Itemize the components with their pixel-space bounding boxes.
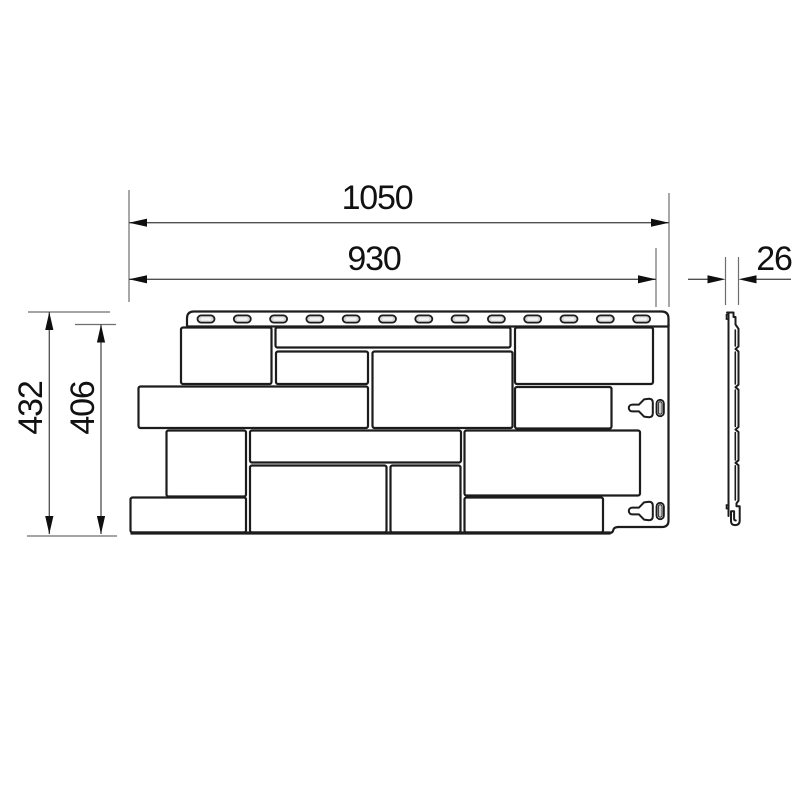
nail-slot [270, 315, 287, 322]
stone [139, 387, 369, 429]
stone [250, 431, 461, 463]
arrowhead-down-icon [45, 516, 53, 534]
arrowhead-down-icon [97, 516, 105, 534]
stone [276, 352, 368, 385]
stone [465, 498, 604, 533]
nail-slot [524, 315, 541, 322]
nail-slot [306, 315, 323, 322]
dimension-label-overall-width: 1050 [342, 179, 413, 217]
lock-hook [629, 399, 664, 417]
nail-slot [234, 315, 251, 322]
nail-slot [561, 315, 578, 322]
dimension-visible-width: 930 [129, 240, 656, 307]
arrowhead-left-icon [129, 219, 147, 227]
bottom-right-step [610, 527, 618, 533]
arrowhead-left-icon [129, 275, 147, 283]
dimension-thickness: 26 [688, 240, 792, 305]
dimension-label-visible-height: 406 [64, 381, 102, 434]
stone [515, 328, 653, 385]
stone [131, 498, 247, 533]
panel-front-view [131, 312, 669, 534]
arrowhead-up-icon [97, 325, 105, 343]
lock-hook [629, 502, 664, 520]
stone [181, 328, 272, 385]
nail-slot [597, 315, 614, 322]
nail-slot [633, 315, 650, 322]
dimension-visible-height: 406 [64, 325, 116, 535]
dimension-label-visible-width: 930 [347, 240, 400, 278]
stone [373, 352, 513, 429]
stone-pattern [131, 328, 654, 533]
facade-panel-dimension-drawing: 1050 930 432 406 26 [0, 0, 800, 800]
arrowhead-left-icon [739, 275, 757, 283]
stone [167, 431, 247, 497]
stone [465, 431, 641, 496]
nail-slot [488, 315, 505, 322]
nail-slot [415, 315, 432, 322]
panel-side-profile-view [727, 313, 740, 526]
stone [391, 466, 461, 533]
nail-slot [452, 315, 469, 322]
arrowhead-up-icon [45, 312, 53, 330]
nail-slot [198, 315, 215, 322]
arrowhead-right-icon [651, 219, 669, 227]
drawing-canvas: 1050 930 432 406 26 [0, 0, 800, 800]
arrowhead-right-icon [638, 275, 656, 283]
stone [515, 387, 612, 429]
nail-slot [343, 315, 360, 322]
nail-slot [379, 315, 396, 322]
stone [250, 466, 387, 533]
stone [276, 328, 511, 348]
dimension-label-thickness: 26 [756, 240, 792, 278]
dimension-label-overall-height: 432 [12, 381, 50, 434]
arrowhead-right-icon [708, 275, 726, 283]
